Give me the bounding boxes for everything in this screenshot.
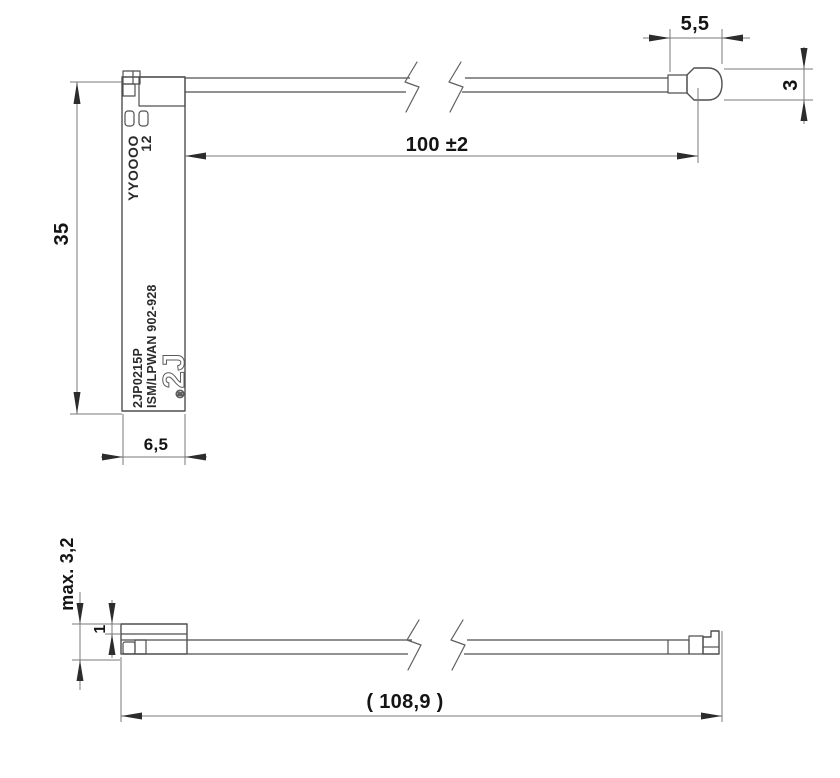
ufl-connector-side	[668, 631, 719, 654]
connector-crimp-side	[668, 640, 689, 654]
dim-pcb-thickness: 1	[92, 600, 121, 658]
pcb-band-label: ISM/LPWAN 902-928	[145, 284, 159, 408]
ufl-connector-top	[668, 68, 722, 100]
dim-label-pcb-thickness: 1	[92, 624, 109, 633]
arrowhead	[74, 392, 81, 414]
break-symbol	[407, 620, 421, 670]
dim-connector-height: 3	[724, 47, 813, 124]
dim-label-max-thickness: max. 3,2	[57, 537, 77, 610]
arrowhead	[185, 454, 206, 461]
arrowhead	[801, 100, 808, 121]
component-pad-right	[139, 111, 148, 126]
dim-cable-length: 100 ±2	[185, 88, 698, 163]
cable-termination	[135, 640, 146, 654]
pcb-side	[121, 624, 187, 654]
dim-label-cable-length: 100 ±2	[406, 134, 469, 156]
dim-label-connector-length: 5,5	[681, 13, 710, 35]
connector-body-side	[689, 636, 703, 654]
dim-label-connector-height: 3	[780, 79, 802, 90]
cable-attach-block	[139, 77, 185, 106]
feed-pad-lower	[123, 84, 135, 96]
pcb-front: YYOOOO 12 2JP0215P ISM/LPWAN 902-928 ®2J	[122, 71, 191, 411]
pcb-part-number: 2JP0215P	[131, 348, 145, 408]
dim-overall-length: ( 108,9 )	[121, 631, 722, 722]
brand-logo: ®2J	[156, 353, 191, 398]
connector-crimp	[668, 75, 687, 93]
break-symbol	[451, 620, 465, 670]
break-symbol	[449, 62, 463, 112]
break-symbol	[405, 62, 419, 112]
top-view: YYOOOO 12 2JP0215P ISM/LPWAN 902-928 ®2J	[51, 13, 813, 465]
solder-joint	[123, 642, 135, 654]
drawing-page: YYOOOO 12 2JP0215P ISM/LPWAN 902-928 ®2J	[0, 0, 840, 778]
side-view: max. 3,2 1 ( 108,9 )	[57, 537, 722, 722]
technical-drawing: YYOOOO 12 2JP0215P ISM/LPWAN 902-928 ®2J	[0, 0, 840, 778]
arrowhead	[677, 153, 698, 160]
arrowhead	[801, 48, 808, 69]
brand-logo-reg: ®	[175, 389, 187, 398]
dim-label-pcb-width: 6,5	[144, 435, 169, 454]
dim-connector-length: 5,5	[643, 13, 750, 72]
arrowhead	[185, 153, 206, 160]
dim-pcb-height: 35	[51, 82, 122, 414]
component-pad-left	[125, 111, 134, 126]
arrowhead	[121, 713, 142, 720]
arrowhead	[77, 603, 84, 624]
dim-label-pcb-height: 35	[51, 223, 73, 246]
arrowhead	[649, 35, 670, 42]
pcb-side-outline	[121, 624, 187, 654]
connector-head-side	[703, 631, 719, 654]
dim-pcb-width: 6,5	[101, 414, 207, 465]
arrowhead	[109, 603, 116, 624]
coax-cable-side	[187, 620, 668, 670]
dim-label-overall-length: ( 108,9 )	[366, 691, 443, 713]
arrowhead	[109, 634, 116, 655]
coax-cable-top	[185, 62, 668, 112]
arrowhead	[701, 713, 722, 720]
connector-body	[687, 68, 722, 100]
arrowhead	[74, 82, 81, 104]
arrowhead	[77, 660, 84, 681]
arrowhead	[102, 454, 123, 461]
arrowhead	[722, 35, 743, 42]
pcb-code: 12	[138, 135, 154, 152]
brand-logo-text: 2J	[156, 353, 191, 388]
